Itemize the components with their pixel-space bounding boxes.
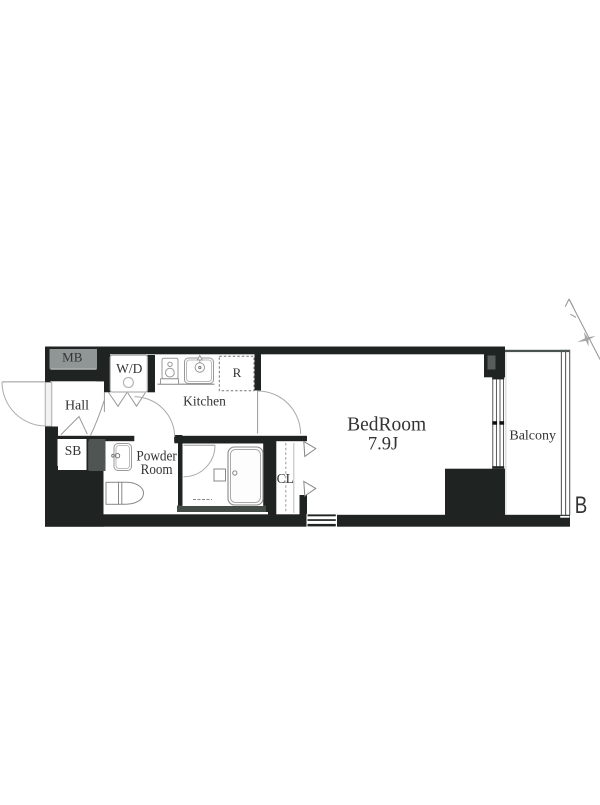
svg-text:Room: Room bbox=[141, 462, 174, 478]
svg-text:SB: SB bbox=[65, 443, 82, 458]
svg-text:7.9J: 7.9J bbox=[368, 435, 398, 455]
svg-text:B: B bbox=[575, 492, 588, 519]
svg-text:MB: MB bbox=[62, 350, 83, 365]
svg-text:Kitchen: Kitchen bbox=[183, 393, 226, 408]
svg-text:Hall: Hall bbox=[65, 398, 89, 413]
svg-text:Balcony: Balcony bbox=[509, 428, 556, 443]
svg-text:R: R bbox=[233, 365, 242, 380]
svg-text:BedRoom: BedRoom bbox=[347, 414, 426, 435]
svg-text:W/D: W/D bbox=[116, 361, 142, 376]
svg-text:CL: CL bbox=[277, 471, 294, 486]
